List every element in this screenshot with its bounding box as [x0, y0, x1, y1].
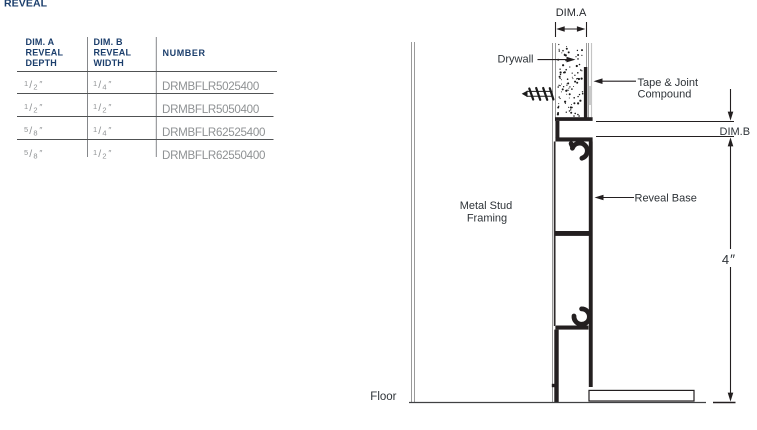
svg-text:1/2″: 1/2″ — [93, 148, 113, 161]
svg-text:Metal Stud: Metal Stud — [460, 200, 513, 212]
svg-text:NUMBER: NUMBER — [163, 48, 206, 58]
svg-text:1/4″: 1/4″ — [93, 79, 113, 92]
svg-text:1/4″: 1/4″ — [93, 125, 113, 138]
svg-text:1/2″: 1/2″ — [24, 102, 44, 115]
svg-text:Tape & Joint: Tape & Joint — [638, 77, 699, 89]
svg-text:1/2″: 1/2″ — [93, 102, 113, 115]
svg-text:DIM. A: DIM. A — [26, 37, 55, 47]
svg-text:Floor: Floor — [370, 391, 396, 403]
svg-text:DRMBFLR5050400: DRMBFLR5050400 — [162, 103, 259, 116]
svg-text:REVEAL: REVEAL — [26, 48, 64, 58]
svg-text:REVEAL: REVEAL — [94, 48, 132, 58]
svg-text:4″: 4″ — [722, 251, 735, 267]
svg-text:Drywall: Drywall — [497, 53, 533, 65]
svg-text:REVEAL: REVEAL — [4, 0, 48, 10]
svg-text:DIM. B: DIM. B — [94, 37, 123, 47]
svg-text:DRMBFLR62525400: DRMBFLR62525400 — [162, 126, 265, 139]
svg-text:Compound: Compound — [638, 88, 692, 100]
svg-text:DIM.A: DIM.A — [556, 7, 587, 19]
svg-text:DRMBFLR62550400: DRMBFLR62550400 — [162, 149, 265, 162]
svg-text:1/2″: 1/2″ — [24, 79, 44, 92]
svg-text:5/8″: 5/8″ — [24, 148, 44, 161]
svg-text:Framing: Framing — [467, 213, 507, 225]
svg-text:DEPTH: DEPTH — [26, 58, 58, 68]
svg-text:5/8″: 5/8″ — [24, 125, 44, 138]
svg-text:DRMBFLR5025400: DRMBFLR5025400 — [162, 80, 259, 93]
svg-text:DIM.B: DIM.B — [720, 126, 751, 138]
svg-text:Reveal Base: Reveal Base — [635, 193, 697, 205]
svg-text:WIDTH: WIDTH — [94, 58, 125, 68]
